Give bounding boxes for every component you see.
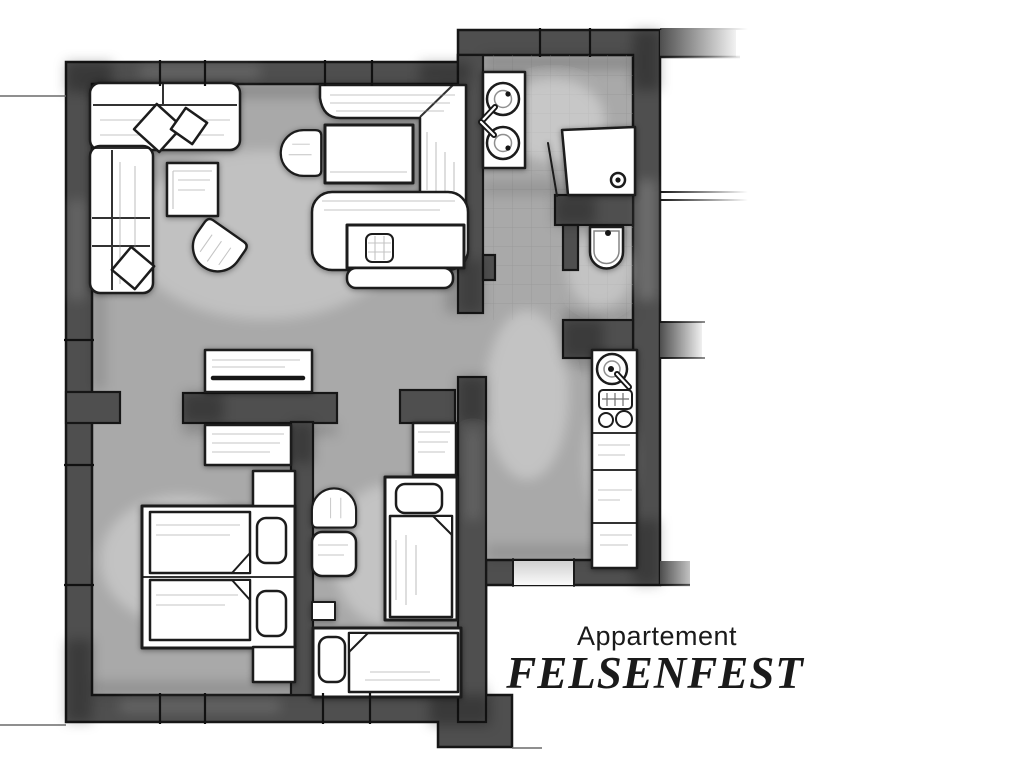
pillow-icon xyxy=(257,518,286,563)
wall-corridor-stub xyxy=(483,255,495,280)
mattress-icon xyxy=(349,633,458,692)
pillow-icon xyxy=(319,637,345,682)
wardrobe-icon xyxy=(413,423,456,475)
tub-chair-icon xyxy=(281,130,321,176)
plan-title: Appartement FELSENFEST xyxy=(505,621,804,698)
sideboard-icon xyxy=(205,350,312,392)
nightstand-icon xyxy=(253,471,295,506)
shelf-icon xyxy=(312,602,335,620)
adjacent-structure xyxy=(660,29,790,585)
mattress-icon xyxy=(150,512,250,573)
wardrobe-icon xyxy=(205,425,291,465)
nightstand-icon xyxy=(253,647,295,682)
single-bed-icon xyxy=(313,628,461,697)
double-bed-icon xyxy=(142,506,295,648)
mattress-icon xyxy=(325,125,413,183)
wall-kidsroom-stub xyxy=(400,390,455,423)
stove-icon xyxy=(599,390,632,427)
mattress-icon xyxy=(150,580,250,640)
wall-wc-left xyxy=(563,225,578,270)
floor-plan-drawing: Appartement FELSENFEST xyxy=(0,0,1024,768)
arch-chair-icon xyxy=(312,488,356,527)
title-felsenfest: FELSENFEST xyxy=(505,648,804,698)
toilet-icon xyxy=(590,227,623,269)
title-appartement: Appartement xyxy=(577,621,737,651)
entry-door-opening xyxy=(513,559,574,586)
burner-icon xyxy=(599,413,613,427)
washbasin-vanity-icon xyxy=(481,72,525,168)
kitchenette-furniture xyxy=(592,350,637,568)
pillow-icon xyxy=(396,484,442,513)
burner-icon xyxy=(616,411,632,427)
remote-icon xyxy=(366,234,393,262)
single-bed-icon xyxy=(385,477,457,620)
coffee-table-icon xyxy=(167,163,218,216)
mattress-icon xyxy=(390,516,452,617)
pillow-icon xyxy=(257,591,286,636)
floor-plan-page: Appartement FELSENFEST xyxy=(0,0,1024,768)
wall-door-stub-left xyxy=(66,392,120,423)
side-table-icon xyxy=(312,532,356,576)
